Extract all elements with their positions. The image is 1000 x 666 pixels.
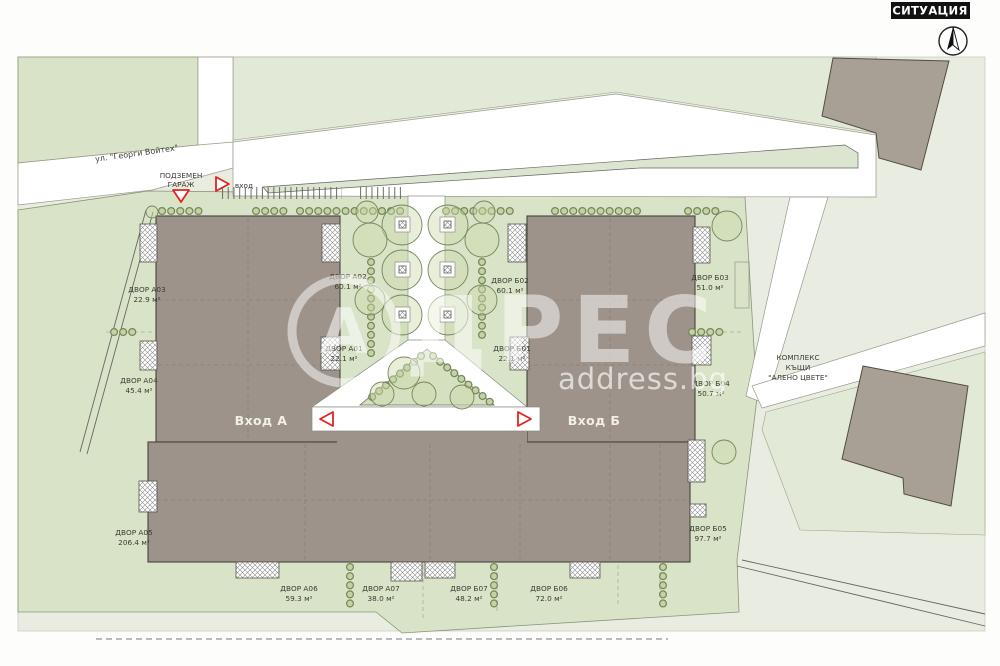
courtyard-area: 22.9 м² xyxy=(134,295,161,304)
courtyard-label: ДВОР А03 xyxy=(128,285,166,294)
courtyard-label: ДВОР Б06 xyxy=(530,584,568,593)
watermark: А ДРЕС address.bg xyxy=(292,277,728,396)
courtyard-area: 72.0 м² xyxy=(536,594,563,603)
terrace xyxy=(425,562,455,578)
building-lower-slab xyxy=(148,442,690,562)
courtyard-label: ДВОР А04 xyxy=(120,376,158,385)
courtyard-label: ДВОР Б05 xyxy=(689,524,726,533)
courtyard-label: ДВОР А07 xyxy=(362,584,400,593)
street-vertical xyxy=(198,57,233,153)
garage-label-line2: ГАРАЖ xyxy=(168,180,195,189)
courtyard-area: 38.0 м² xyxy=(368,594,395,603)
terrace xyxy=(140,341,157,370)
terrace xyxy=(570,562,600,578)
terrace xyxy=(139,481,157,512)
courtyard-label: ДВОР А05 xyxy=(115,528,152,537)
garage-label-line1: ПОДЗЕМЕН xyxy=(160,171,203,180)
terrace xyxy=(322,224,340,262)
entry-label: вход xyxy=(235,181,253,190)
terrace xyxy=(688,440,705,482)
entrance-a-label: Вход А xyxy=(235,413,288,428)
north-arrow-icon xyxy=(939,27,967,55)
terrace xyxy=(140,224,157,262)
page-title: СИТУАЦИЯ xyxy=(892,4,967,18)
watermark-logo-letter: А xyxy=(320,295,368,368)
courtyard-label: ДВОР Б07 xyxy=(450,584,488,593)
terrace xyxy=(693,227,710,263)
terrace xyxy=(391,562,422,581)
complex-label-line1: КОМПЛЕКС xyxy=(776,353,819,362)
courtyard-area: 48.2 м² xyxy=(456,594,483,603)
complex-label-line2: КЪЩИ xyxy=(786,363,811,372)
courtyard-area: 59.3 м² xyxy=(286,594,313,603)
courtyard-area: 97.7 м² xyxy=(695,534,722,543)
terrace xyxy=(508,224,526,262)
entrance-walkway xyxy=(312,407,540,431)
building-center-fill xyxy=(337,429,527,445)
terrace xyxy=(690,504,706,517)
situation-plan: ул. "Георги Войтех" ПОДЗЕМЕН ГАРАЖ вход … xyxy=(0,0,1000,666)
courtyard-area: 45.4 м² xyxy=(126,386,153,395)
complex-label-line3: "АЛЕНО ЦВЕТЕ" xyxy=(768,373,828,382)
watermark-domain: address.bg xyxy=(558,362,728,396)
courtyard-label: ДВОР А06 xyxy=(280,584,318,593)
courtyard-area: 206.4 м² xyxy=(118,538,150,547)
terrace xyxy=(236,562,279,578)
entrance-b-label: Вход Б xyxy=(568,413,621,428)
